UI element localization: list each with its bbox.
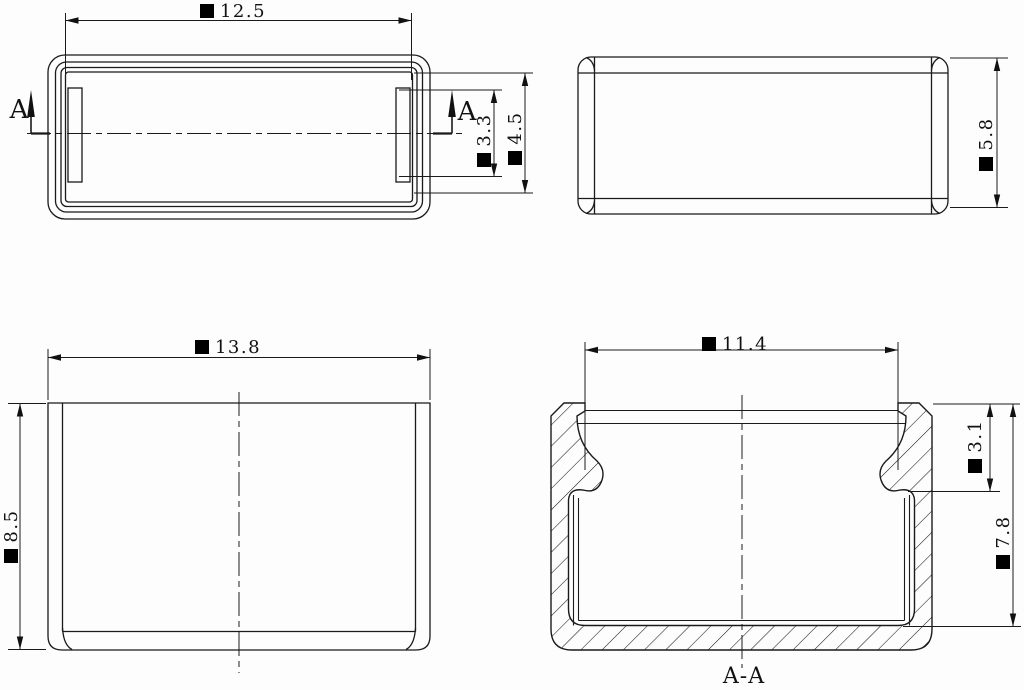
dimension-label-top-width: 12.5 — [178, 0, 288, 22]
filled-square-symbol — [702, 337, 716, 351]
filled-square-symbol — [508, 151, 522, 165]
filled-square-symbol — [4, 549, 18, 563]
dimension-value: 8.5 — [1, 509, 22, 542]
top-view-outer-contour — [48, 55, 430, 219]
dimension-value: 11.4 — [722, 334, 768, 355]
filled-square-symbol — [477, 153, 491, 167]
filled-square-symbol — [200, 4, 214, 18]
filled-square-symbol — [996, 555, 1010, 569]
filled-square-symbol — [979, 157, 993, 171]
side-view-linework — [578, 57, 1008, 214]
section-view-title: A-A — [709, 664, 779, 688]
dimension-value: 4.5 — [505, 111, 526, 144]
section-letter-left: A — [6, 96, 32, 124]
dimension-label-slot-length: 4.5 — [504, 83, 526, 193]
dimension-value: 12.5 — [220, 1, 266, 22]
dimension-label-side-height: 5.8 — [975, 89, 997, 199]
dimension-label-section-inner-height: 7.8 — [992, 487, 1014, 597]
dimension-value: 3.1 — [965, 419, 986, 452]
dimension-label-front-width: 13.8 — [173, 336, 283, 358]
dimension-value: 7.8 — [993, 515, 1014, 548]
dimension-label-section-inner-width: 11.4 — [680, 333, 790, 355]
filled-square-symbol — [968, 459, 982, 473]
engineering-drawing-canvas: 12.5 3.3 4.5 5.8 13.8 8.5 11.4 3.1 7.8 A… — [0, 0, 1024, 690]
side-view-outer-contour — [578, 57, 948, 214]
filled-square-symbol — [195, 340, 209, 354]
top-view-left-bead — [68, 88, 82, 182]
dimension-value: 13.8 — [215, 337, 261, 358]
section-cut-marks — [27, 90, 456, 134]
section-letter-right: A — [454, 98, 480, 126]
dimension-value: 5.8 — [976, 117, 997, 150]
front-view-linework — [8, 349, 430, 673]
top-view-right-bead — [396, 88, 410, 182]
dimension-label-section-lip-depth: 3.1 — [964, 391, 986, 501]
dimension-label-front-height: 8.5 — [0, 481, 22, 591]
section-view-linework — [551, 342, 1021, 668]
dim-lines-top-width — [66, 13, 412, 80]
